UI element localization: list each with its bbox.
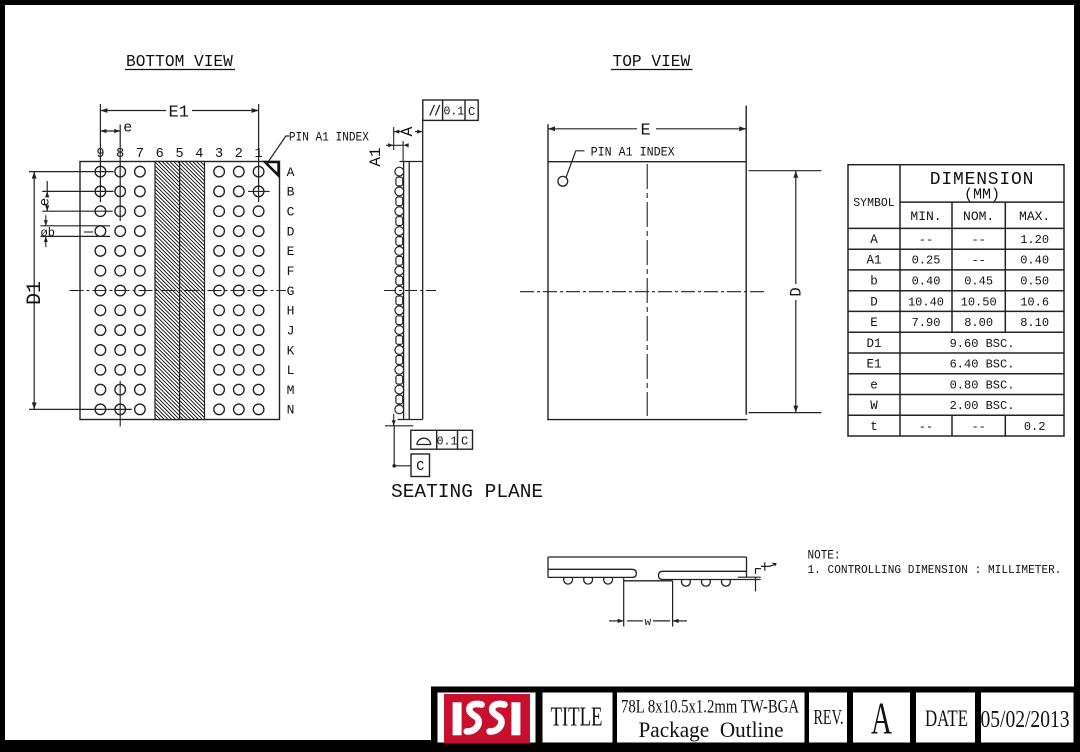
svg-text:2.00 BSC.: 2.00 BSC. (950, 399, 1015, 413)
svg-text:7: 7 (136, 147, 144, 162)
svg-text:W: W (870, 399, 878, 413)
svg-text:--: -- (919, 420, 933, 434)
svg-text:7.90: 7.90 (912, 316, 941, 330)
svg-text:10.6: 10.6 (1020, 295, 1049, 309)
svg-text:9.60 BSC.: 9.60 BSC. (950, 337, 1015, 351)
svg-text:A: A (287, 165, 295, 180)
svg-text:SEATING PLANE: SEATING PLANE (391, 481, 543, 503)
svg-text:e: e (870, 378, 878, 392)
svg-text:E: E (287, 244, 295, 259)
svg-text:e: e (38, 198, 54, 206)
svg-text:D: D (870, 295, 878, 309)
svg-text:PIN A1 INDEX: PIN A1 INDEX (289, 130, 369, 145)
svg-text:b: b (870, 275, 878, 289)
svg-text:D1: D1 (866, 337, 881, 351)
svg-text:D: D (287, 224, 295, 239)
svg-text:--: -- (919, 233, 933, 247)
svg-text:NOM.: NOM. (963, 209, 994, 224)
svg-text:t: t (870, 420, 878, 434)
svg-text:6.40 BSC.: 6.40 BSC. (950, 358, 1015, 372)
svg-text:05/02/2013: 05/02/2013 (981, 706, 1070, 733)
svg-text:0.40: 0.40 (1020, 254, 1049, 268)
svg-text:0.50: 0.50 (1020, 275, 1049, 289)
svg-text:E: E (641, 122, 651, 141)
svg-text:MAX.: MAX. (1019, 209, 1050, 224)
svg-text:øb: øb (41, 226, 55, 240)
svg-text:G: G (287, 284, 295, 299)
svg-text:MIN.: MIN. (910, 209, 941, 224)
svg-text:0.45: 0.45 (964, 275, 993, 289)
svg-text:M: M (287, 383, 295, 398)
svg-text:--: -- (971, 254, 985, 268)
svg-text:10.50: 10.50 (961, 295, 997, 309)
svg-text:--: -- (971, 233, 985, 247)
svg-text:5: 5 (175, 147, 183, 162)
svg-text:0.1: 0.1 (443, 106, 464, 119)
svg-text:E: E (870, 316, 878, 330)
svg-text:SYMBOL: SYMBOL (853, 197, 895, 210)
svg-text:0.2: 0.2 (1024, 420, 1046, 434)
svg-text:N: N (287, 403, 295, 418)
svg-text:6: 6 (156, 147, 164, 162)
svg-text:J: J (287, 323, 295, 338)
svg-text:L: L (287, 363, 295, 378)
svg-text:A: A (398, 127, 417, 137)
svg-text:A: A (871, 694, 892, 744)
svg-text:F: F (287, 264, 295, 279)
svg-text:A1: A1 (866, 254, 881, 268)
svg-text:NOTE:: NOTE: (808, 549, 841, 563)
svg-text:8.10: 8.10 (1020, 316, 1049, 330)
svg-text:78L 8x10.5x1.2mm TW-BGA: 78L 8x10.5x1.2mm TW-BGA (621, 697, 799, 718)
svg-text:0.80 BSC.: 0.80 BSC. (950, 378, 1015, 392)
svg-text:e: e (123, 120, 132, 137)
svg-text:w: w (645, 617, 652, 629)
svg-text:C: C (468, 105, 475, 119)
svg-text:REV.: REV. (814, 705, 844, 729)
svg-text:BOTTOM VIEW: BOTTOM VIEW (126, 53, 233, 71)
svg-text:8.00: 8.00 (964, 316, 993, 330)
svg-text:E1: E1 (866, 358, 881, 372)
svg-text:4: 4 (195, 147, 203, 162)
svg-text:0.40: 0.40 (912, 275, 941, 289)
svg-text:2: 2 (235, 147, 243, 162)
svg-text:H: H (287, 304, 295, 319)
svg-text:10.40: 10.40 (908, 295, 944, 309)
svg-text:DATE: DATE (925, 706, 968, 731)
svg-text:C: C (287, 205, 295, 220)
svg-text:A1: A1 (367, 147, 385, 166)
svg-text:D1: D1 (24, 281, 47, 305)
svg-text:--: -- (971, 420, 985, 434)
svg-text:K: K (287, 343, 295, 358)
svg-text:0.25: 0.25 (912, 254, 941, 268)
svg-text:TITLE: TITLE (551, 702, 603, 732)
svg-text:C: C (416, 460, 424, 475)
svg-text:D: D (788, 287, 806, 296)
svg-text:Package Outline: Package Outline (639, 717, 784, 742)
svg-text:A: A (870, 233, 878, 247)
svg-text:TOP VIEW: TOP VIEW (613, 53, 691, 71)
svg-text:B: B (287, 185, 295, 200)
svg-text:PIN A1 INDEX: PIN A1 INDEX (591, 144, 675, 159)
svg-text:0.1: 0.1 (437, 435, 458, 448)
svg-text:(MM): (MM) (964, 187, 1000, 204)
svg-text:1.20: 1.20 (1020, 233, 1049, 247)
svg-text:3: 3 (215, 147, 223, 162)
svg-text:1. CONTROLLING DIMENSION : MIL: 1. CONTROLLING DIMENSION : MILLIMETER. (808, 564, 1062, 577)
svg-text:C: C (461, 435, 468, 449)
svg-text:E1: E1 (169, 104, 189, 123)
